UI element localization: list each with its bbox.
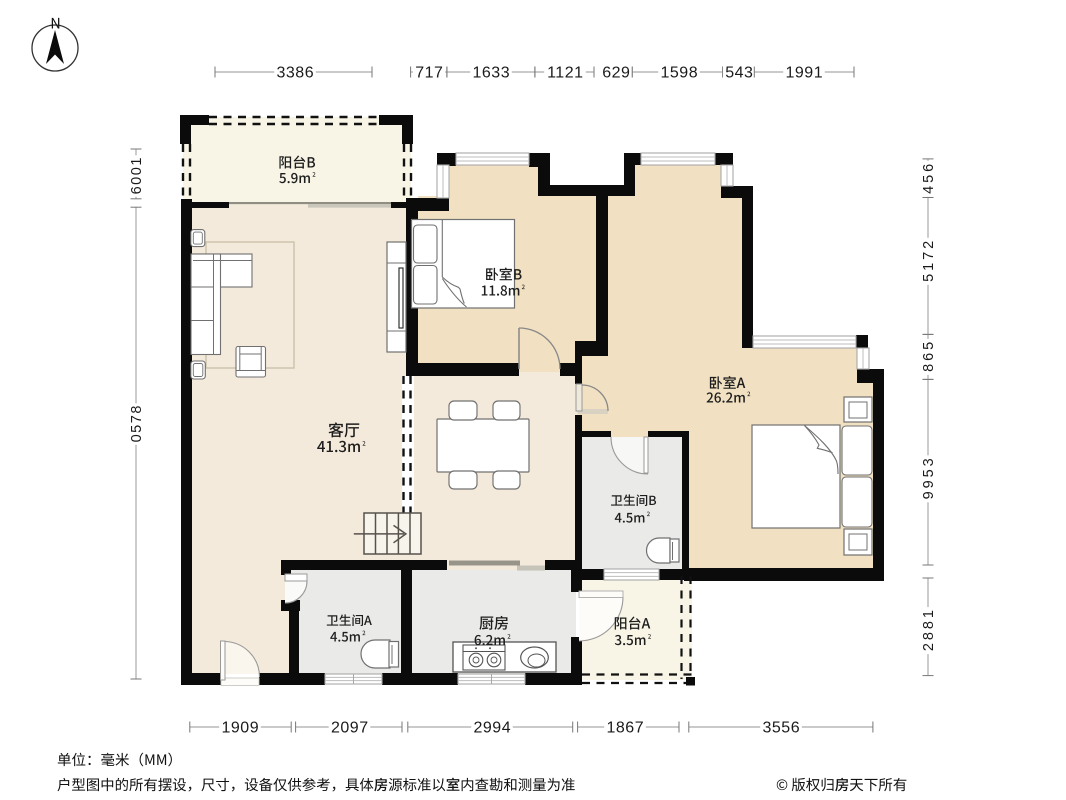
svg-text:2: 2 [921, 643, 937, 651]
svg-text:5: 5 [921, 469, 937, 477]
svg-text:1121: 1121 [547, 64, 583, 81]
svg-text:9: 9 [921, 491, 937, 499]
svg-text:9: 9 [921, 480, 937, 488]
svg-text:5: 5 [921, 175, 937, 183]
svg-text:5: 5 [129, 425, 145, 433]
svg-text:8: 8 [129, 406, 145, 414]
svg-text:2: 2 [921, 241, 937, 249]
svg-text:1598: 1598 [661, 64, 699, 81]
svg-text:0: 0 [129, 177, 145, 185]
svg-text:6: 6 [129, 186, 145, 194]
svg-text:3: 3 [921, 458, 937, 466]
svg-text:1633: 1633 [473, 64, 511, 81]
svg-text:0: 0 [129, 434, 145, 442]
svg-text:8: 8 [921, 632, 937, 640]
svg-text:1867: 1867 [607, 719, 645, 736]
svg-text:5: 5 [921, 274, 937, 282]
svg-text:1909: 1909 [222, 719, 260, 736]
svg-text:8: 8 [921, 364, 937, 372]
svg-text:8: 8 [921, 621, 937, 629]
svg-text:2994: 2994 [474, 719, 512, 736]
svg-text:0: 0 [129, 167, 145, 175]
svg-text:1: 1 [921, 610, 937, 618]
svg-text:543: 543 [725, 64, 753, 81]
svg-text:1991: 1991 [786, 64, 824, 81]
svg-text:7: 7 [129, 415, 145, 423]
svg-text:4: 4 [921, 186, 937, 194]
svg-text:6: 6 [921, 164, 937, 172]
svg-text:2097: 2097 [331, 719, 369, 736]
svg-text:5: 5 [921, 342, 937, 350]
svg-text:629: 629 [602, 64, 630, 81]
svg-text:717: 717 [415, 64, 443, 81]
svg-text:6: 6 [921, 353, 937, 361]
svg-text:1: 1 [921, 263, 937, 271]
svg-text:1: 1 [129, 158, 145, 166]
svg-text:3556: 3556 [763, 719, 801, 736]
svg-text:7: 7 [921, 252, 937, 260]
svg-text:3386: 3386 [277, 64, 315, 81]
